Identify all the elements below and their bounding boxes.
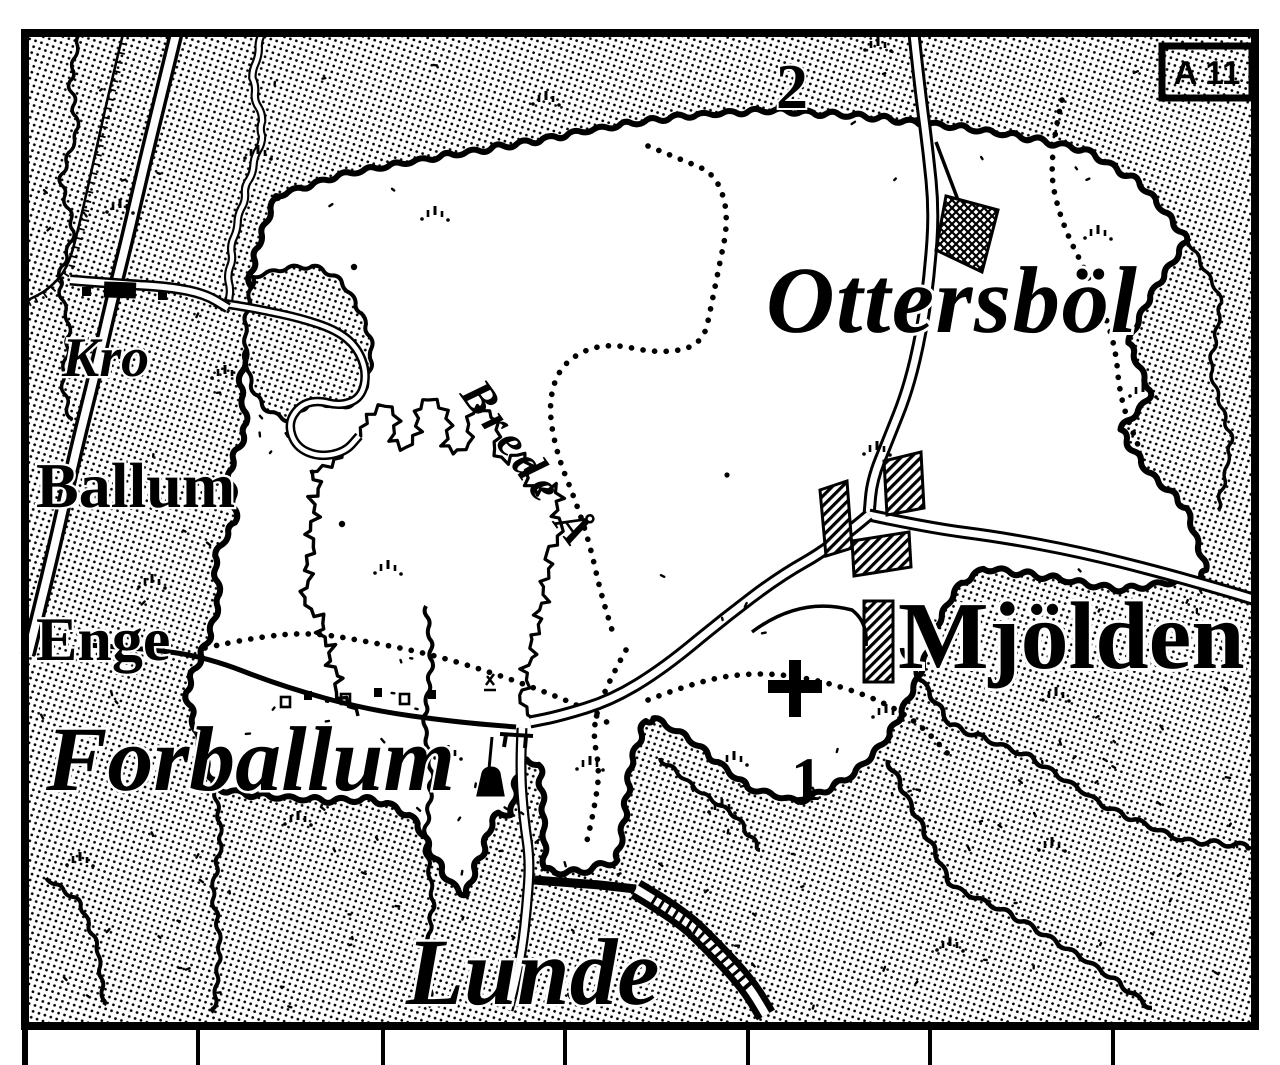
svg-text:Forballum: Forballum [45, 708, 455, 810]
svg-text:Ottersböl: Ottersböl [766, 247, 1138, 353]
svg-text:Mjölden: Mjölden [898, 582, 1245, 689]
svg-text:1: 1 [791, 746, 822, 814]
svg-text:Kro: Kro [61, 327, 149, 389]
svg-text:A 11: A 11 [1174, 54, 1241, 91]
svg-text:Ballum: Ballum [36, 450, 235, 521]
svg-text:Enge: Enge [36, 606, 170, 674]
svg-text:Lunde: Lunde [405, 919, 659, 1025]
svg-text:2: 2 [776, 51, 808, 122]
